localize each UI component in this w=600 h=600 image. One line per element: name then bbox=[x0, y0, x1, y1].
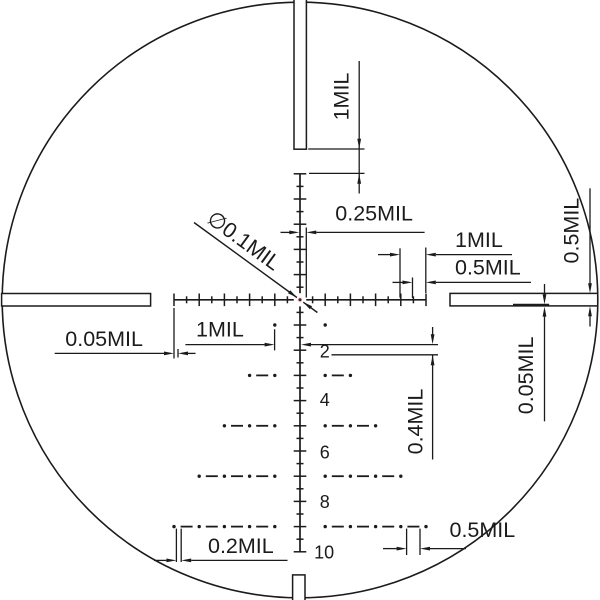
svg-text:0.25MIL: 0.25MIL bbox=[335, 202, 413, 226]
svg-text:0.5MIL: 0.5MIL bbox=[455, 256, 521, 280]
svg-text:1MIL: 1MIL bbox=[196, 318, 244, 342]
svg-text:4: 4 bbox=[320, 390, 330, 410]
svg-text:0.2MIL: 0.2MIL bbox=[208, 534, 274, 558]
svg-text:6: 6 bbox=[320, 443, 330, 463]
svg-text:∅0.1MIL: ∅0.1MIL bbox=[203, 206, 285, 275]
svg-text:1MIL: 1MIL bbox=[330, 73, 354, 121]
svg-text:0.4MIL: 0.4MIL bbox=[403, 389, 427, 455]
svg-text:10: 10 bbox=[314, 542, 334, 562]
svg-text:0.5MIL: 0.5MIL bbox=[450, 518, 516, 542]
svg-text:0.5MIL: 0.5MIL bbox=[559, 198, 583, 264]
svg-text:0.05MIL: 0.05MIL bbox=[65, 327, 143, 351]
svg-text:8: 8 bbox=[320, 492, 330, 512]
svg-text:1MIL: 1MIL bbox=[455, 228, 503, 252]
svg-text:0.05MIL: 0.05MIL bbox=[514, 337, 538, 415]
